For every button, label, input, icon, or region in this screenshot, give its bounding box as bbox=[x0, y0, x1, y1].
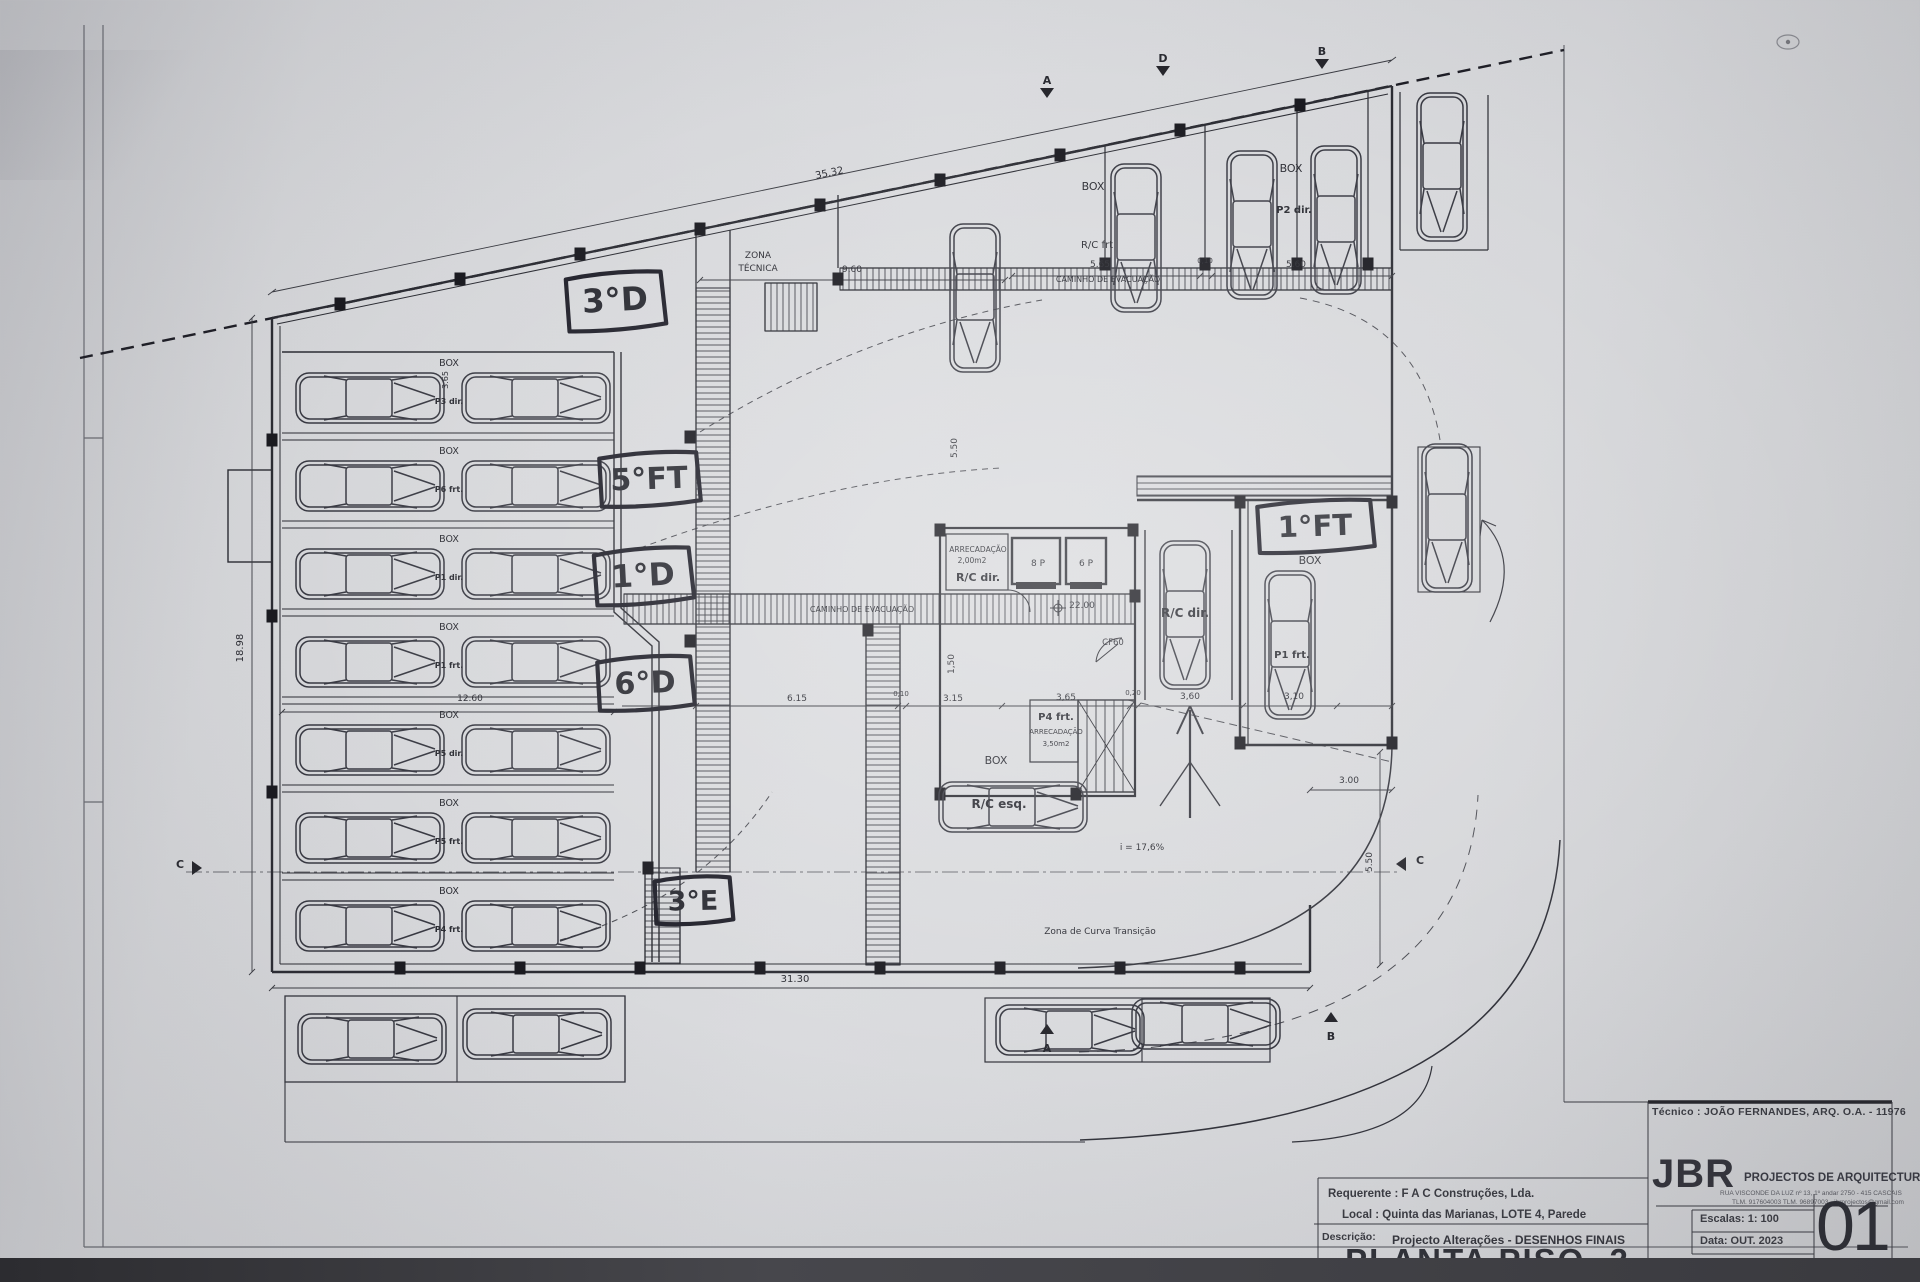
handwritten-text: 1°D bbox=[610, 556, 675, 595]
plan-label: P5 frt. bbox=[435, 837, 464, 846]
column-square bbox=[685, 635, 696, 648]
car-icon bbox=[463, 1009, 611, 1059]
marker-letter: C bbox=[1416, 854, 1424, 867]
marker-letter: A bbox=[1043, 1042, 1052, 1055]
handwritten-text: 1°FT bbox=[1277, 508, 1353, 545]
car-icon bbox=[462, 813, 610, 863]
plan-label: BOX bbox=[1299, 554, 1322, 567]
car-icon bbox=[1132, 999, 1280, 1049]
car-icon bbox=[1417, 93, 1467, 241]
car-icon bbox=[296, 373, 444, 423]
marker-letter: A bbox=[1043, 74, 1052, 87]
marker-letter: D bbox=[1158, 52, 1167, 65]
column-square bbox=[1175, 124, 1186, 137]
dimension-text: 0,10 bbox=[893, 690, 909, 698]
table-edge-shadow bbox=[0, 1258, 1920, 1282]
plan-label: 3,50m2 bbox=[1043, 740, 1070, 748]
plan-label: R/C dir. bbox=[1161, 606, 1209, 620]
column-square bbox=[515, 962, 526, 975]
dimension-text: 3.15 bbox=[943, 694, 963, 704]
dimension-text: 18.98 bbox=[235, 634, 246, 663]
car-icon bbox=[996, 1005, 1144, 1055]
plan-label: BOX bbox=[439, 710, 459, 721]
car-icon bbox=[298, 1014, 446, 1064]
marker-triangle-icon bbox=[1396, 857, 1406, 871]
dimension-text: 3,10 bbox=[1284, 692, 1304, 702]
car-icon bbox=[462, 901, 610, 951]
dimension-text: 1,50 bbox=[947, 654, 957, 674]
plan-label: ARRECADAÇÃO bbox=[949, 545, 1007, 554]
column-square bbox=[335, 298, 346, 311]
handwritten-text: 3°E bbox=[668, 886, 719, 918]
column-square bbox=[815, 199, 826, 212]
column-square bbox=[685, 431, 696, 444]
column-square bbox=[1128, 524, 1139, 537]
dimension-text: 9.60 bbox=[842, 265, 862, 275]
marker-triangle-icon bbox=[1040, 88, 1054, 98]
dimension-text: 5.50 bbox=[1365, 852, 1375, 872]
marker-letter: B bbox=[1318, 45, 1326, 58]
handwritten-text: 6°D bbox=[614, 665, 676, 702]
dimension-text: 0,10 bbox=[1197, 257, 1213, 265]
dimension-text: 0,20 bbox=[1125, 689, 1141, 697]
plan-label: R/C dir. bbox=[956, 571, 1000, 584]
marker-letter: B bbox=[1327, 1030, 1335, 1043]
plan-label: BOX bbox=[1280, 162, 1303, 175]
plan-label: P5 dir. bbox=[435, 749, 464, 758]
plan-label: TÉCNICA bbox=[737, 262, 778, 274]
dimension-text: 3.65 bbox=[441, 371, 450, 389]
plan-label: Zona de Curva Transição bbox=[1044, 927, 1156, 937]
column-square bbox=[875, 962, 886, 975]
column-square bbox=[1115, 962, 1126, 975]
column-square bbox=[395, 962, 406, 975]
column-square bbox=[635, 962, 646, 975]
dimension-text: 3.00 bbox=[1339, 776, 1359, 786]
dimension-text: 5.60 bbox=[1286, 260, 1306, 270]
car-icon bbox=[462, 373, 610, 423]
car-icon bbox=[462, 461, 610, 511]
plan-label: i = 17,6% bbox=[1120, 843, 1165, 853]
column-square bbox=[575, 248, 586, 261]
date-field: Data: OUT. 2023 bbox=[1700, 1235, 1783, 1247]
car-icon bbox=[462, 725, 610, 775]
plan-label: P6 frt. bbox=[435, 485, 464, 494]
column-square bbox=[1363, 258, 1374, 271]
plan-label: BOX bbox=[1082, 180, 1105, 193]
plan-label: P1 dir. bbox=[435, 573, 464, 582]
plan-label: P1 frt. bbox=[1274, 650, 1310, 661]
section-marker: B bbox=[1324, 1012, 1338, 1043]
column-square bbox=[1235, 496, 1246, 509]
column-square bbox=[267, 610, 278, 623]
dimension-text: 3,65 bbox=[1056, 693, 1076, 703]
marker-triangle-icon bbox=[1156, 66, 1170, 76]
handwritten-annotation: 6°D bbox=[597, 655, 695, 712]
car-icon bbox=[296, 549, 444, 599]
column-square bbox=[643, 862, 654, 875]
plan-label: 22.00 bbox=[1069, 601, 1095, 611]
plan-label: P1 frt. bbox=[435, 661, 464, 670]
photographed-floor-plan: { "sheet": { "tecnico": "Técnico : JOÃO … bbox=[0, 0, 1920, 1282]
scale-field: Escalas: 1: 100 bbox=[1700, 1213, 1779, 1225]
dimension-lines bbox=[249, 57, 1396, 991]
plan-label: 8 P bbox=[1031, 559, 1046, 569]
plan-label: R/C frt bbox=[1081, 240, 1113, 251]
column-square bbox=[1295, 99, 1306, 112]
plan-label: BOX bbox=[439, 886, 459, 897]
plan-label: P3 dir. bbox=[435, 397, 464, 406]
dimension-text: 3,60 bbox=[1180, 692, 1200, 702]
plan-label: BOX bbox=[985, 754, 1008, 767]
dimension-text: 31.30 bbox=[781, 974, 810, 985]
column-square bbox=[935, 524, 946, 537]
marker-triangle-icon bbox=[1040, 1024, 1054, 1034]
column-square bbox=[267, 786, 278, 799]
handwritten-text: 5°FT bbox=[610, 461, 689, 499]
dimension-text: 6.15 bbox=[787, 694, 807, 704]
dimension-text: 35.32 bbox=[814, 165, 844, 182]
marker-letter: C bbox=[176, 858, 184, 871]
plan-label: BOX bbox=[439, 534, 459, 545]
car-icon bbox=[462, 549, 610, 599]
car-icon bbox=[296, 461, 444, 511]
column-square bbox=[755, 962, 766, 975]
column-square bbox=[1130, 590, 1141, 603]
car-icon bbox=[462, 637, 610, 687]
handwritten-text: 3°D bbox=[581, 279, 649, 320]
firm-name: PROJECTOS DE ARQUITECTURA bbox=[1744, 1172, 1920, 1184]
technician-name: Técnico : JOÃO FERNANDES, ARQ. O.A. - 11… bbox=[1652, 1106, 1906, 1118]
column-square bbox=[267, 434, 278, 447]
plan-label: BOX bbox=[439, 798, 459, 809]
dimension-text: 12.60 bbox=[457, 694, 483, 704]
plan-label: BOX bbox=[439, 622, 459, 633]
marker-triangle-icon bbox=[1315, 59, 1329, 69]
client-field: Requerente : F A C Construções, Lda. bbox=[1328, 1188, 1534, 1200]
plan-label: CF60 bbox=[1102, 638, 1124, 648]
marker-triangle-icon bbox=[1324, 1012, 1338, 1022]
column-square bbox=[1387, 496, 1398, 509]
marker-triangle-icon bbox=[192, 861, 202, 875]
plan-label: BOX bbox=[439, 358, 459, 369]
plan-label: P4 frt. bbox=[435, 925, 464, 934]
plan-label: R/C esq. bbox=[971, 797, 1026, 811]
hatched-circulation-bands bbox=[624, 268, 1392, 965]
plan-label: ZONA bbox=[745, 251, 772, 261]
section-marker: D bbox=[1156, 52, 1170, 76]
car-icon bbox=[296, 901, 444, 951]
column-square bbox=[1235, 737, 1246, 750]
column-square bbox=[863, 624, 874, 637]
column-square bbox=[935, 174, 946, 187]
plan-label: 2,00m2 bbox=[958, 556, 987, 565]
handwritten-annotation: 3°D bbox=[566, 270, 667, 333]
car-icon bbox=[296, 637, 444, 687]
section-markers: ADBCCAB bbox=[176, 45, 1424, 1055]
plan-label: 6 P bbox=[1079, 559, 1094, 569]
car-icon bbox=[296, 725, 444, 775]
column-square bbox=[1235, 962, 1246, 975]
column-square bbox=[1055, 149, 1066, 162]
dimension-text: 5.50 bbox=[950, 438, 960, 458]
site-location-field: Local : Quinta das Marianas, LOTE 4, Par… bbox=[1342, 1209, 1586, 1221]
column-square bbox=[695, 223, 706, 236]
column-square bbox=[995, 962, 1006, 975]
dimension-text: 5.65 bbox=[1090, 260, 1110, 270]
plan-label: BOX bbox=[439, 446, 459, 457]
section-marker: B bbox=[1315, 45, 1329, 69]
sheet-number: 01 bbox=[1816, 1186, 1888, 1266]
section-marker: C bbox=[1396, 854, 1424, 871]
floor-plan-drawing: ZONATÉCNICACAMINHO DE EVACUAÇÃOCAMINHO D… bbox=[0, 0, 1920, 1282]
car-icon bbox=[1422, 444, 1472, 592]
section-marker: A bbox=[1040, 74, 1054, 98]
column-square bbox=[455, 273, 466, 286]
car-icon bbox=[296, 813, 444, 863]
plan-label: P2 dir. bbox=[1276, 205, 1312, 216]
handwritten-annotation: 1°FT bbox=[1257, 499, 1375, 554]
column-square bbox=[1387, 737, 1398, 750]
plan-label: ARRECADAÇÃO bbox=[1029, 727, 1083, 736]
car-icon bbox=[950, 224, 1000, 372]
plan-label: CAMINHO DE EVACUAÇÃO bbox=[1056, 274, 1160, 284]
section-marker: C bbox=[176, 858, 202, 875]
plan-label: CAMINHO DE EVACUAÇÃO bbox=[810, 604, 914, 614]
plan-label: P4 frt. bbox=[1038, 712, 1074, 723]
